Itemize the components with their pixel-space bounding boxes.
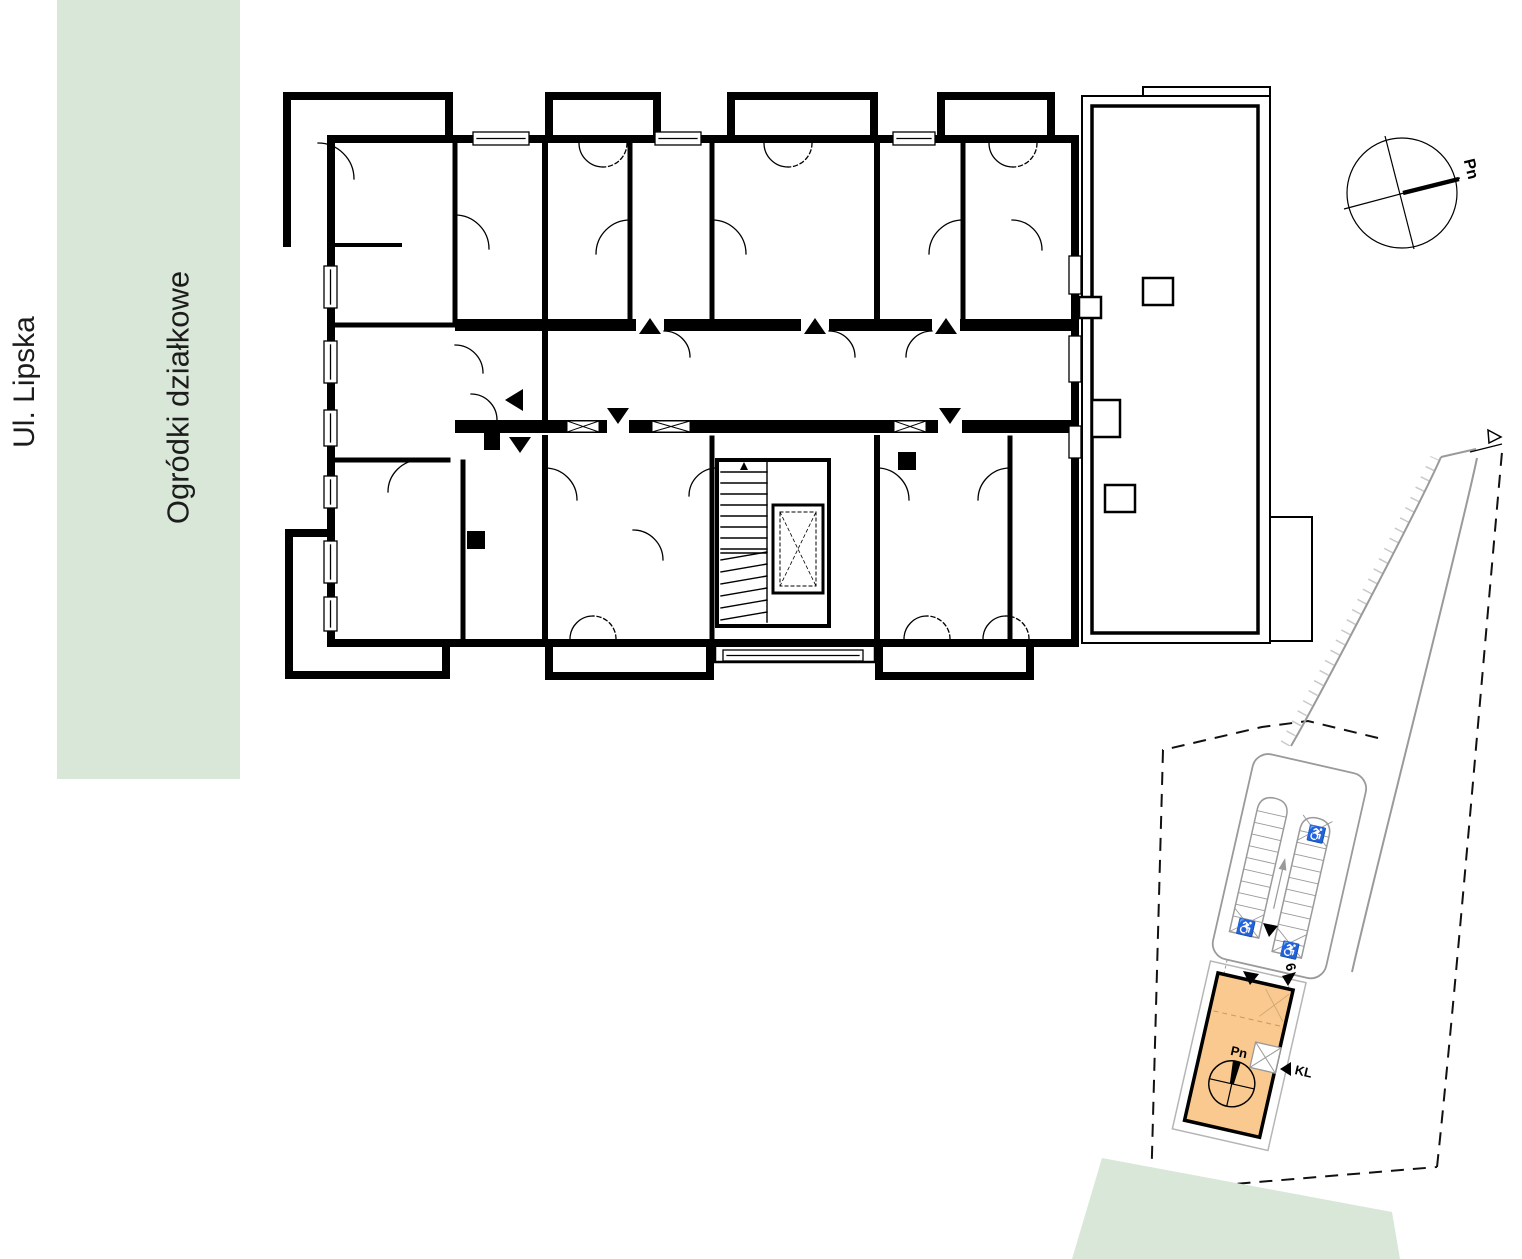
access-road [1285,430,1502,972]
balcony [549,96,657,133]
north-needle [1403,179,1459,193]
door-swing [318,143,1042,639]
balcony [287,96,449,243]
balcony [941,96,1051,133]
green-area [1072,1158,1400,1259]
roof-terrace [1079,87,1312,643]
plan-drawing: Pn [0,0,1522,1259]
interior-walls [333,143,1010,641]
balcony [731,96,874,133]
balcony [879,645,1030,676]
window-symbol [324,132,1081,661]
lane-arrow [1279,857,1289,870]
elevator [773,505,823,593]
site-plan: ♿ ♿ ♿ Pn [1072,430,1502,1259]
compass-icon: Pn [1344,136,1481,249]
terrace-lower-left [289,533,446,675]
highlighted-building: Pn [1172,961,1306,1150]
building-floor-plan [287,87,1312,676]
road-end-arrow [1488,430,1501,443]
balcony [549,645,710,676]
staircase-label: KL [1293,1062,1313,1081]
wheelchair-icon: ♿ [1305,824,1327,846]
entrance-number: 6 [1282,961,1299,973]
building-entrance-box [1250,1042,1281,1073]
compass-north-label: Pn [1460,157,1481,181]
wheelchair-icon: ♿ [1279,940,1301,962]
floor-plan-sheet: Ul. Lipska Ogródki działkowe [0,0,1522,1259]
parking-lot [1206,751,1369,996]
